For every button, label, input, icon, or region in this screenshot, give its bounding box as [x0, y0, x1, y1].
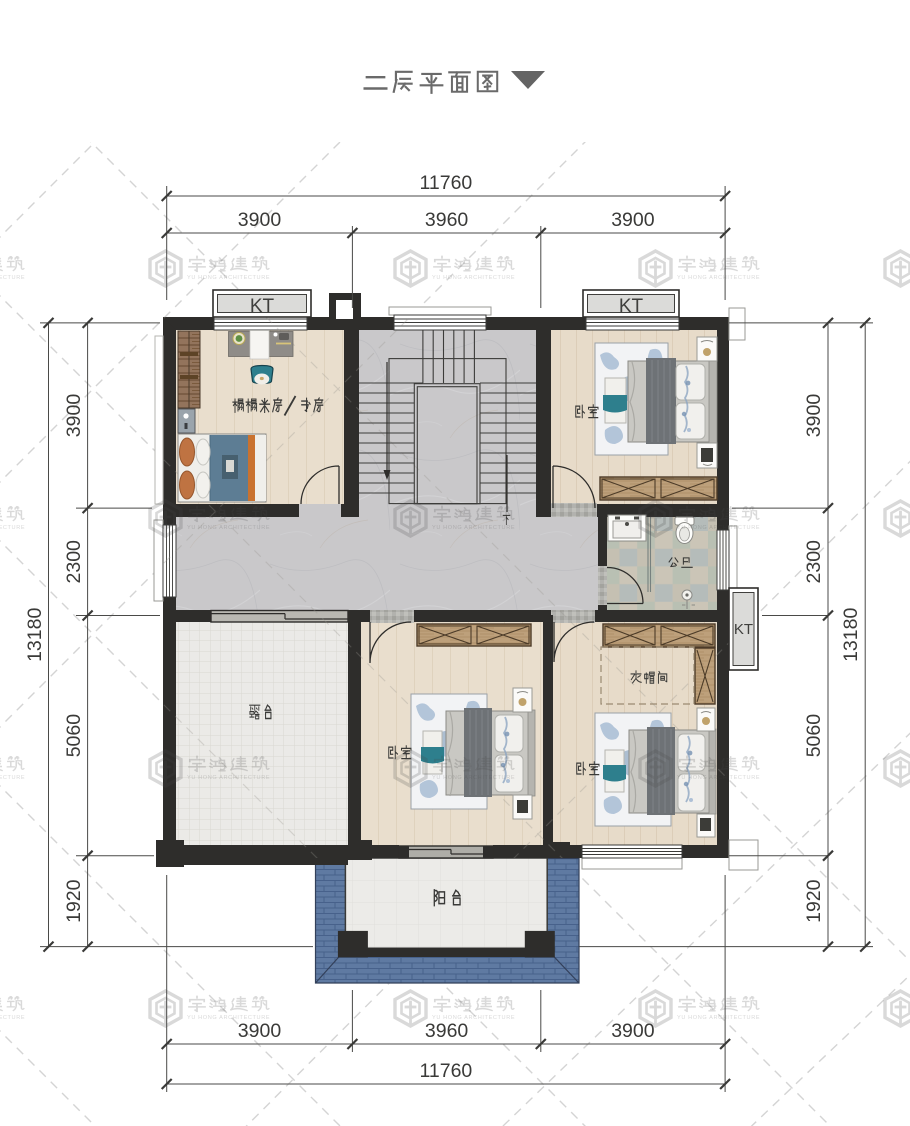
- svg-text:1920: 1920: [63, 879, 85, 923]
- svg-text:11760: 11760: [420, 172, 473, 194]
- svg-text:3900: 3900: [63, 394, 85, 438]
- svg-text:3900: 3900: [238, 1020, 282, 1042]
- svg-text:KT: KT: [250, 296, 275, 317]
- svg-text:2300: 2300: [803, 540, 825, 584]
- svg-text:13180: 13180: [24, 608, 46, 662]
- svg-text:3900: 3900: [803, 394, 825, 438]
- svg-text:3960: 3960: [425, 209, 469, 231]
- svg-text:11760: 11760: [420, 1060, 473, 1082]
- svg-text:3900: 3900: [238, 209, 282, 231]
- svg-text:5060: 5060: [63, 714, 85, 758]
- svg-text:2300: 2300: [63, 540, 85, 584]
- svg-text:5060: 5060: [803, 714, 825, 758]
- svg-text:3960: 3960: [425, 1020, 469, 1042]
- svg-text:13180: 13180: [840, 608, 862, 662]
- svg-text:KT: KT: [734, 621, 753, 638]
- svg-text:1920: 1920: [803, 879, 825, 923]
- svg-text:KT: KT: [619, 296, 644, 317]
- svg-text:3900: 3900: [611, 209, 655, 231]
